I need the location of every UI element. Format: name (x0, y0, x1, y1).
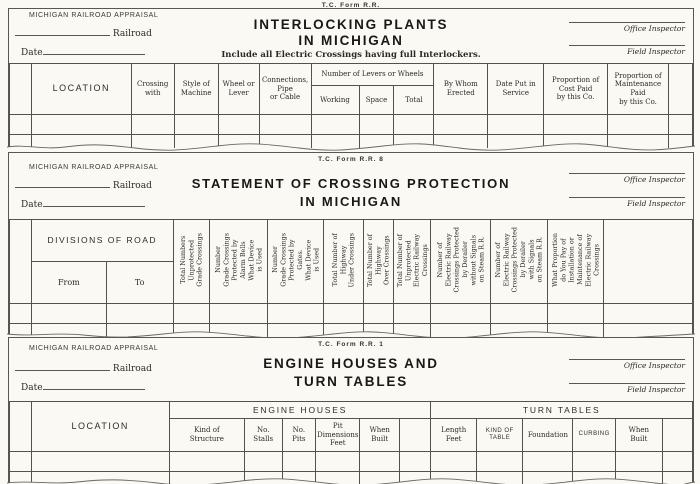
col-header-crossing-with: Crossing with (131, 64, 174, 115)
col-header-derailer-with-signals: Number of Electric Railway Crossings Pro… (491, 220, 548, 304)
group-header-engine-houses: ENGINE HOUSES (169, 402, 431, 419)
empty-cell (10, 115, 32, 135)
col-header-space: Space (359, 86, 394, 115)
crossing-protection-table: DIVISIONS OF ROAD Total Numbers Unprotec… (9, 219, 693, 338)
col-header-total: Total (394, 86, 434, 115)
col-header-from: From (31, 262, 106, 304)
empty-cell (394, 304, 431, 324)
empty-cell (169, 452, 244, 472)
empty-cell (174, 115, 218, 135)
empty-cell (282, 452, 316, 472)
empty-cell (394, 115, 434, 135)
office-inspector-field: Office Inspector (535, 22, 685, 33)
interlocking-plants-table: LOCATION Crossing with Style of Machine … (9, 63, 693, 148)
col-header-no-stalls: No. Stalls (244, 419, 282, 452)
col-header-proportion-cost: Proportion of Cost Paid by this Co. (544, 64, 608, 115)
engine-houses-turn-tables-table: LOCATION ENGINE HOUSES TURN TABLES Kind … (9, 401, 693, 484)
office-inspector-label: Office Inspector (535, 175, 685, 184)
field-inspector-label: Field Inspector (535, 385, 685, 394)
empty-cell (604, 304, 693, 324)
end-column (604, 220, 693, 304)
agency-heading: MICHIGAN RAILROAD APPRAISAL (29, 345, 158, 352)
col-header-highway-under-crossings: Total Number of Highway Under Crossings (324, 220, 364, 304)
empty-cell (311, 115, 359, 135)
col-header-when-built-turn-tables: When Built (616, 419, 662, 452)
empty-cell (31, 452, 169, 472)
office-inspector-blank-line (569, 173, 685, 174)
empty-cell (31, 115, 131, 135)
empty-cell (548, 304, 604, 324)
empty-cell (259, 115, 311, 135)
spacer-column (400, 419, 431, 452)
end-column (669, 64, 693, 115)
empty-cell (10, 452, 32, 472)
empty-cell (31, 304, 106, 324)
office-inspector-field: Office Inspector (535, 173, 685, 184)
torn-edge (7, 476, 695, 484)
empty-cell (523, 452, 573, 472)
col-header-pit-dimensions: Pit Dimensions Feet (316, 419, 360, 452)
empty-cell (209, 304, 268, 324)
field-inspector-label: Field Inspector (535, 199, 685, 208)
empty-cell (669, 115, 693, 135)
col-header-style-of-machine: Style of Machine (174, 64, 218, 115)
field-inspector-field: Field Inspector (535, 45, 685, 56)
col-header-curbing: CURBING (573, 419, 616, 452)
office-inspector-label: Office Inspector (535, 24, 685, 33)
col-header-by-whom-erected: By Whom Erected (434, 64, 488, 115)
office-inspector-label: Office Inspector (535, 361, 685, 370)
col-header-no-pits: No. Pits (282, 419, 316, 452)
row-number-column (10, 220, 32, 304)
col-header-protected-by-alarm-bells: Number Grade Crossings Protected by Alar… (209, 220, 268, 304)
empty-cell (364, 304, 394, 324)
office-inspector-blank-line (569, 359, 685, 360)
col-header-foundation: Foundation (523, 419, 573, 452)
col-header-kind-of-table: KIND OF TABLE (477, 419, 523, 452)
col-header-proportion-maintenance: Proportion of Maintenance Paid by this C… (608, 64, 669, 115)
empty-cell (608, 115, 669, 135)
empty-cell (491, 304, 548, 324)
group-header-turn-tables: TURN TABLES (431, 402, 693, 419)
empty-cell (10, 304, 32, 324)
empty-cell (173, 304, 209, 324)
col-header-unprotected-grade-crossings: Total Numbers Unprotected Grade Crossing… (173, 220, 209, 304)
field-inspector-field: Field Inspector (535, 383, 685, 394)
field-inspector-blank-line (569, 383, 685, 384)
scanned-form-page: T.C. Form R.R. MICHIGAN RAILROAD APPRAIS… (0, 0, 700, 484)
col-header-wheel-or-lever: Wheel or Lever (218, 64, 259, 115)
col-header-location: LOCATION (31, 64, 131, 115)
empty-cell (400, 452, 431, 472)
row-number-column (10, 402, 32, 452)
agency-heading: MICHIGAN RAILROAD APPRAISAL (29, 164, 158, 171)
col-header-highway-over-crossings: Total Number of Highway Over Crossings (364, 220, 394, 304)
empty-cell (431, 452, 477, 472)
empty-cell (544, 115, 608, 135)
empty-cell (360, 452, 400, 472)
form-interlocking-plants: T.C. Form R.R. MICHIGAN RAILROAD APPRAIS… (8, 8, 694, 148)
col-header-proportion-electric-crossings: What Proportion do You Pay of Installati… (548, 220, 604, 304)
field-inspector-field: Field Inspector (535, 197, 685, 208)
empty-cell (573, 452, 616, 472)
empty-cell (106, 304, 173, 324)
empty-cell (434, 115, 488, 135)
empty-cell (488, 115, 544, 135)
table-row (10, 304, 693, 324)
empty-cell (218, 115, 259, 135)
table-row (10, 452, 693, 472)
col-header-kind-of-structure: Kind of Structure (169, 419, 244, 452)
col-header-derailer-without-signals: Number of Electric Railway Crossings Pro… (431, 220, 491, 304)
col-header-unprotected-electric-railway: Total Number of Unprotected Electric Rai… (394, 220, 431, 304)
empty-cell (316, 452, 360, 472)
empty-cell (268, 304, 324, 324)
col-header-when-built-engine-houses: When Built (360, 419, 400, 452)
empty-cell (324, 304, 364, 324)
form-engine-houses-turn-tables: T.C. Form R.R. 1 MICHIGAN RAILROAD APPRA… (8, 337, 694, 483)
col-header-to: To (106, 262, 173, 304)
field-inspector-blank-line (569, 45, 685, 46)
row-number-column (10, 64, 32, 115)
empty-cell (131, 115, 174, 135)
col-header-protected-by-gates: Number Grade Crossings Protected by Gate… (268, 220, 324, 304)
field-inspector-label: Field Inspector (535, 47, 685, 56)
empty-cell (359, 115, 394, 135)
empty-cell (662, 452, 692, 472)
form-number: T.C. Form R.R. 8 (9, 156, 693, 163)
form-number: T.C. Form R.R. (9, 2, 693, 9)
form-crossing-protection: T.C. Form R.R. 8 MICHIGAN RAILROAD APPRA… (8, 152, 694, 336)
empty-cell (477, 452, 523, 472)
table-row (10, 115, 693, 135)
end-column (662, 419, 692, 452)
office-inspector-blank-line (569, 22, 685, 23)
empty-cell (431, 304, 491, 324)
col-header-connections: Connections, Pipe or Cable (259, 64, 311, 115)
col-header-working: Working (311, 86, 359, 115)
empty-cell (616, 452, 662, 472)
group-header-levers-or-wheels: Number of Levers or Wheels (311, 64, 434, 86)
col-header-length-feet: Length Feet (431, 419, 477, 452)
office-inspector-field: Office Inspector (535, 359, 685, 370)
group-header-divisions-of-road: DIVISIONS OF ROAD (31, 220, 173, 262)
field-inspector-blank-line (569, 197, 685, 198)
empty-cell (244, 452, 282, 472)
col-header-location: LOCATION (31, 402, 169, 452)
col-header-date-put-in-service: Date Put in Service (488, 64, 544, 115)
